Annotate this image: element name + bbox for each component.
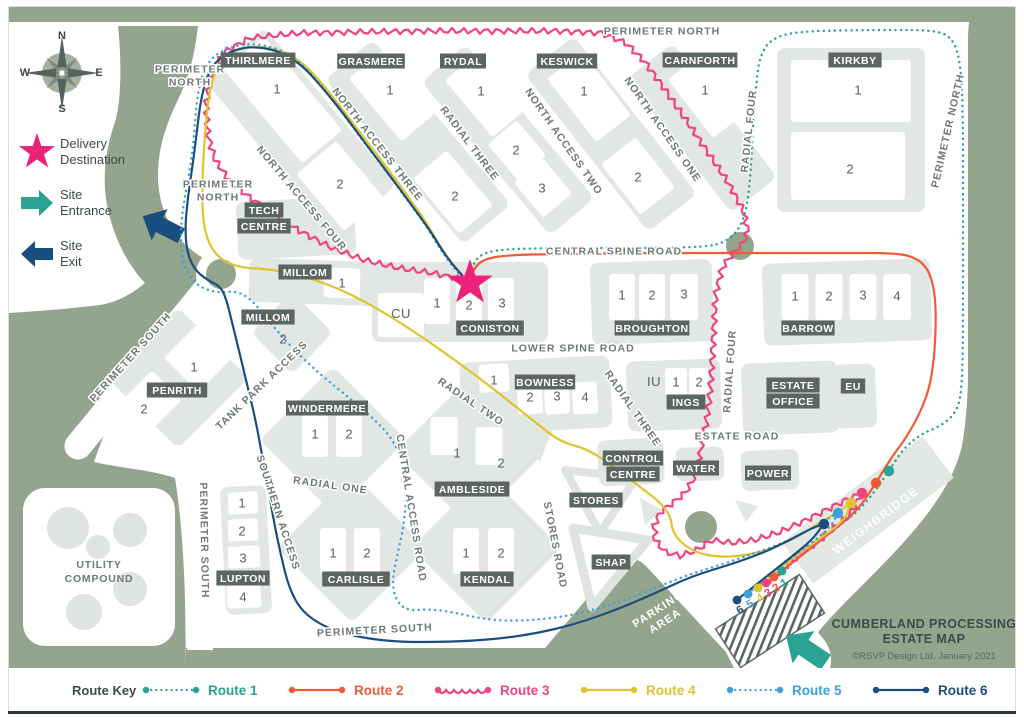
- unit-number: 2: [634, 170, 641, 185]
- unit-number: 1: [329, 546, 336, 561]
- road-label: PERIMETER SOUTH: [197, 482, 211, 598]
- estate-map-canvas: WEIGHBRIDGE 654321PERIMETER NORTHPERIMET…: [0, 0, 1024, 718]
- area-label-cu: CU: [391, 306, 411, 321]
- building-label: LUPTON: [220, 573, 266, 585]
- road-label: PERIMETER NORTH: [604, 26, 721, 38]
- legend-delivery-line1: Delivery: [60, 136, 125, 152]
- legend-exit-line1: Site: [60, 238, 82, 254]
- route1-key-label: Route 1: [208, 683, 258, 698]
- legend-entrance-line1: Site: [60, 187, 112, 203]
- estate-map-page: WEIGHBRIDGE 654321PERIMETER NORTHPERIMET…: [0, 0, 1024, 718]
- unit-number: 1: [618, 288, 625, 303]
- building-block: [735, 500, 758, 522]
- building-label: MILLOM: [283, 267, 327, 279]
- unit-number: 2: [846, 162, 853, 177]
- building-label: BARROW: [782, 323, 833, 335]
- exit-arrow-icon: [14, 234, 60, 274]
- delivery-star-icon: [14, 132, 60, 172]
- unit-number: 3: [859, 288, 866, 303]
- road-label: PERIMETER: [183, 179, 253, 191]
- unit-number: 2: [336, 177, 343, 192]
- route-key-bar: Route Key Route 1Route 2Route 3Route 4Ro…: [8, 668, 1016, 712]
- unit-number: 1: [462, 546, 469, 561]
- building-label: STORES: [573, 495, 619, 507]
- route-start-dot: [744, 590, 753, 599]
- unit-number: 2: [465, 298, 472, 313]
- unit-number: 2: [497, 456, 504, 471]
- entrance-arrow-icon: [14, 183, 60, 223]
- route2-key-label: Route 2: [354, 683, 404, 698]
- building-label: BOWNESS: [516, 377, 574, 389]
- building-label: TECH: [249, 205, 280, 217]
- building-label: KESWICK: [540, 56, 593, 68]
- building-unit-cell: [791, 60, 911, 122]
- route-start-dot: [754, 584, 763, 593]
- route-key-entry-route3: Route 3: [432, 683, 578, 698]
- unit-number: 2: [238, 524, 245, 539]
- route6-sample-line: [870, 683, 932, 697]
- unit-number: 2: [526, 390, 533, 405]
- route5-sample-line: [724, 683, 786, 697]
- unit-number: 2: [279, 332, 286, 347]
- utility-compound-label: UTILITY: [76, 559, 121, 571]
- building-label: SHAP: [595, 557, 626, 569]
- unit-number: 2: [512, 143, 519, 158]
- unit-number: 3: [553, 389, 560, 404]
- unit-number: 1: [190, 360, 197, 375]
- building-label: CARNFORTH: [665, 55, 736, 67]
- compass-west-label: W: [20, 67, 31, 79]
- building-label: GRASMERE: [339, 56, 404, 68]
- unit-number: 3: [498, 296, 505, 311]
- road-label: NORTH: [197, 192, 239, 204]
- building-label: WINDERMERE: [288, 403, 366, 415]
- compass-east-label: E: [95, 67, 102, 79]
- route3-key-label: Route 3: [500, 683, 550, 698]
- building-label: OFFICE: [772, 396, 814, 408]
- route6-key-label: Route 6: [938, 683, 988, 698]
- route-key-entry-route1: Route 1: [140, 683, 286, 698]
- title-line1: CUMBERLAND PROCESSING: [826, 617, 1022, 632]
- unit-number: 1: [338, 276, 345, 291]
- building-label: KIRKBY: [833, 55, 876, 67]
- route4-sample-line: [578, 683, 640, 697]
- route-start-dot: [778, 567, 787, 576]
- building-label: RYDAL: [444, 56, 482, 68]
- unit-number: 1: [386, 83, 393, 98]
- legend-delivery-destination: DeliveryDestination: [14, 132, 144, 172]
- unit-number: 2: [695, 375, 702, 390]
- compass-north-label: N: [58, 30, 66, 42]
- building-label: THIRLMERE: [225, 55, 291, 67]
- weighbridge-stop-dot: [833, 508, 843, 518]
- compass-south-label: S: [58, 103, 65, 115]
- route-key-entry-route6: Route 6: [870, 683, 1016, 698]
- unit-number: 1: [580, 84, 587, 99]
- road-label: PERIMETER: [155, 64, 225, 76]
- unit-number: 4: [893, 289, 900, 304]
- building-label: PENRITH: [152, 385, 202, 397]
- route2-sample-line: [286, 683, 348, 697]
- bottom-rule: [8, 711, 1016, 714]
- unit-number: 2: [363, 546, 370, 561]
- unit-number: 2: [825, 289, 832, 304]
- unit-number: 3: [538, 181, 545, 196]
- unit-number: 2: [648, 288, 655, 303]
- route-start-dot: [762, 579, 771, 588]
- building-label: EU: [845, 381, 861, 393]
- area-label-iu: IU: [647, 374, 661, 389]
- road-label: PERIMETER SOUTH: [317, 621, 433, 639]
- building-label: CARLISLE: [328, 574, 385, 586]
- building-label: POWER: [747, 468, 789, 480]
- unit-number: 1: [672, 375, 679, 390]
- unit-number: 2: [345, 427, 352, 442]
- map-legend: DeliveryDestination SiteEntrance SiteExi…: [14, 132, 144, 285]
- weighbridge-stop-dot: [857, 488, 867, 498]
- utility-compound-label: COMPOUND: [65, 573, 134, 585]
- road-label: LOWER SPINE ROAD: [511, 343, 634, 355]
- building-label: KENDAL: [464, 574, 511, 586]
- unit-number: 1: [791, 289, 798, 304]
- unit-number: 4: [581, 390, 588, 405]
- road-label: ESTATE ROAD: [695, 431, 780, 443]
- unit-number: 1: [490, 373, 497, 388]
- unit-number: 2: [451, 189, 458, 204]
- unit-number: 4: [239, 590, 246, 605]
- title-line2: ESTATE MAP: [826, 632, 1022, 647]
- unit-number: 1: [273, 82, 280, 97]
- building-label: INGS: [672, 397, 700, 409]
- unit-number: 1: [238, 496, 245, 511]
- unit-number: 2: [140, 402, 147, 417]
- map-title: CUMBERLAND PROCESSING ESTATE MAP ©RSVP D…: [826, 617, 1022, 662]
- route1-sample-line: [140, 683, 202, 697]
- route-key-entry-route4: Route 4: [578, 683, 724, 698]
- building-label: AMBLESIDE: [439, 484, 505, 496]
- legend-entrance-line2: Entrance: [60, 203, 112, 219]
- weighbridge-stop-dot: [846, 498, 856, 508]
- route-key-entries: Route 1Route 2Route 3Route 4Route 5Route…: [140, 683, 1016, 698]
- building-label: WATER: [676, 463, 716, 475]
- road-label: NORTH: [169, 77, 211, 89]
- weighbridge-stop-dot: [871, 478, 881, 488]
- building-block: [833, 363, 877, 428]
- route-start-dot: [770, 573, 779, 582]
- legend-exit-line2: Exit: [60, 254, 82, 270]
- road-label: PERIMETER NORTH: [929, 73, 967, 189]
- legend-site-exit: SiteExit: [14, 234, 144, 274]
- route3-sample-line: [432, 683, 494, 697]
- building-label: CONTROL: [605, 453, 660, 465]
- building-label: CONISTON: [460, 323, 519, 335]
- copyright: ©RSVP Design Ltd. January 2021: [826, 651, 1022, 662]
- unit-number: 3: [680, 287, 687, 302]
- unit-number: 1: [453, 446, 460, 461]
- weighbridge-stop-dot: [884, 466, 894, 476]
- route4-key-label: Route 4: [646, 683, 696, 698]
- road-label: CENTRAL SPINE ROAD: [546, 246, 682, 258]
- building-label: CENTRE: [241, 221, 287, 233]
- legend-site-entrance: SiteEntrance: [14, 183, 144, 223]
- unit-number: 2: [497, 546, 504, 561]
- route-key-entry-route5: Route 5: [724, 683, 870, 698]
- unit-number: 1: [433, 296, 440, 311]
- route5-key-label: Route 5: [792, 683, 842, 698]
- route-key-entry-route2: Route 2: [286, 683, 432, 698]
- building-label: MILLOM: [246, 312, 290, 324]
- building-label: ESTATE: [772, 380, 815, 392]
- building-label: BROUGHTON: [615, 323, 688, 335]
- road-label: RADIAL FOUR: [721, 329, 739, 413]
- unit-number: 1: [477, 84, 484, 99]
- unit-number: 1: [701, 83, 708, 98]
- legend-delivery-line2: Destination: [60, 152, 125, 168]
- route-start-dot: [733, 596, 742, 605]
- unit-number: 1: [854, 83, 861, 98]
- unit-number: 1: [311, 427, 318, 442]
- weighbridge-stop-dot: [819, 519, 829, 529]
- building-label: CENTRE: [610, 469, 656, 481]
- route-key-title: Route Key: [72, 683, 140, 698]
- compass-icon: [25, 36, 99, 110]
- unit-number: 3: [239, 551, 246, 566]
